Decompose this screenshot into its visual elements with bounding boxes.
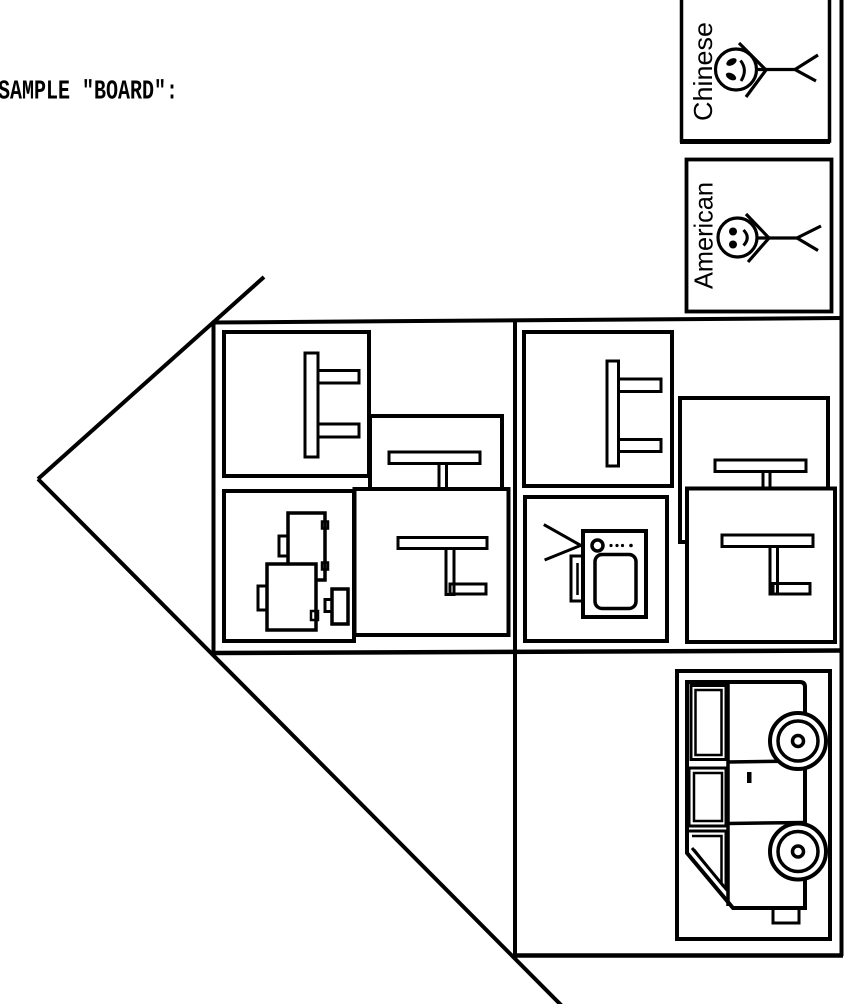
- svg-text:American: American: [689, 182, 719, 289]
- svg-text:SAMPLE "BOARD":: SAMPLE "BOARD":: [0, 78, 178, 108]
- svg-text:Chinese: Chinese: [688, 22, 718, 121]
